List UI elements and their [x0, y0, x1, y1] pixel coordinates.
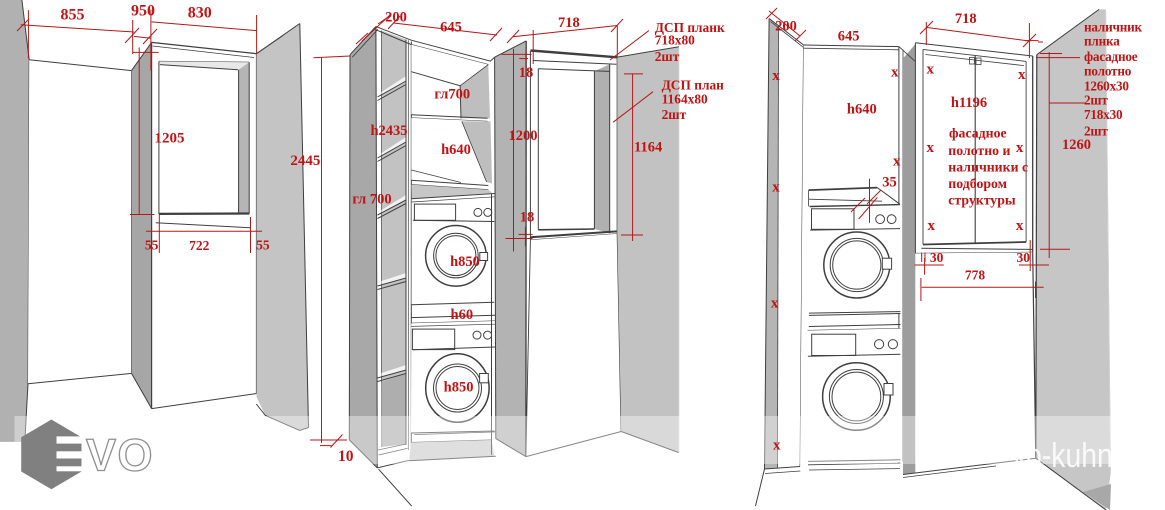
svg-text:VO: VO	[86, 430, 154, 481]
svg-text:фасадное: фасадное	[1084, 49, 1138, 64]
svg-text:x: x	[893, 154, 901, 170]
svg-text:2шт: 2шт	[1084, 93, 1108, 108]
svg-text:фасадное: фасадное	[949, 126, 1007, 141]
svg-text:1260: 1260	[1062, 137, 1091, 153]
svg-text:2шт: 2шт	[662, 107, 687, 122]
svg-text:x: x	[1018, 67, 1026, 83]
svg-text:2шт: 2шт	[655, 49, 680, 64]
svg-text:645: 645	[838, 29, 860, 45]
svg-text:2445: 2445	[290, 153, 320, 169]
svg-text:18: 18	[520, 210, 535, 226]
svg-text:x: x	[926, 140, 934, 156]
svg-text:645: 645	[440, 20, 462, 36]
svg-text:55: 55	[145, 238, 159, 253]
svg-text:h60: h60	[451, 307, 474, 323]
svg-text:1205: 1205	[155, 131, 185, 147]
svg-text:30: 30	[1017, 250, 1031, 265]
svg-text:55: 55	[256, 238, 270, 253]
svg-text:гл 700: гл 700	[352, 192, 391, 208]
svg-text:1164: 1164	[634, 139, 662, 155]
svg-text:x: x	[926, 62, 934, 78]
svg-text:h1196: h1196	[951, 95, 987, 111]
svg-text:200: 200	[775, 19, 797, 35]
svg-text:30: 30	[930, 250, 944, 265]
svg-text:x: x	[1016, 140, 1024, 156]
svg-text:35: 35	[882, 175, 897, 191]
svg-text:950: 950	[131, 3, 155, 20]
svg-text:h640: h640	[847, 102, 877, 118]
svg-text:vo-kuhni.ru: vo-kuhni.ru	[1012, 437, 1152, 475]
svg-text:x: x	[772, 179, 780, 195]
svg-text:10: 10	[338, 448, 354, 465]
svg-text:h850: h850	[444, 380, 474, 396]
svg-text:x: x	[891, 65, 899, 81]
svg-text:h2435: h2435	[370, 123, 407, 139]
svg-text:полотно: полотно	[1084, 64, 1132, 79]
svg-text:718: 718	[955, 11, 977, 27]
svg-text:718: 718	[558, 15, 580, 31]
svg-text:778: 778	[965, 268, 986, 283]
svg-text:2шт: 2шт	[1084, 123, 1108, 138]
svg-text:подбором: подбором	[948, 176, 1007, 191]
svg-text:1164x80: 1164x80	[662, 91, 708, 106]
svg-text:718x30: 718x30	[1084, 107, 1123, 122]
svg-text:h850: h850	[450, 254, 480, 270]
svg-text:наличник: наличник	[1084, 20, 1143, 35]
svg-text:x: x	[772, 68, 780, 84]
svg-text:гл700: гл700	[434, 87, 470, 103]
svg-text:x: x	[928, 218, 936, 234]
svg-text:структуры: структуры	[948, 193, 1016, 208]
svg-text:718x80: 718x80	[655, 32, 695, 47]
svg-text:x: x	[773, 438, 781, 454]
svg-text:полотно и: полотно и	[948, 143, 1010, 158]
svg-text:722: 722	[189, 238, 210, 253]
svg-text:855: 855	[61, 7, 85, 24]
svg-text:1260x30: 1260x30	[1084, 78, 1129, 93]
svg-text:830: 830	[188, 4, 212, 21]
svg-text:плнка: плнка	[1084, 33, 1120, 48]
svg-text:x: x	[771, 296, 779, 312]
svg-text:h640: h640	[441, 142, 471, 158]
svg-text:x: x	[1016, 218, 1024, 234]
svg-text:1200: 1200	[509, 128, 538, 144]
svg-text:наличники с: наличники с	[948, 160, 1028, 175]
